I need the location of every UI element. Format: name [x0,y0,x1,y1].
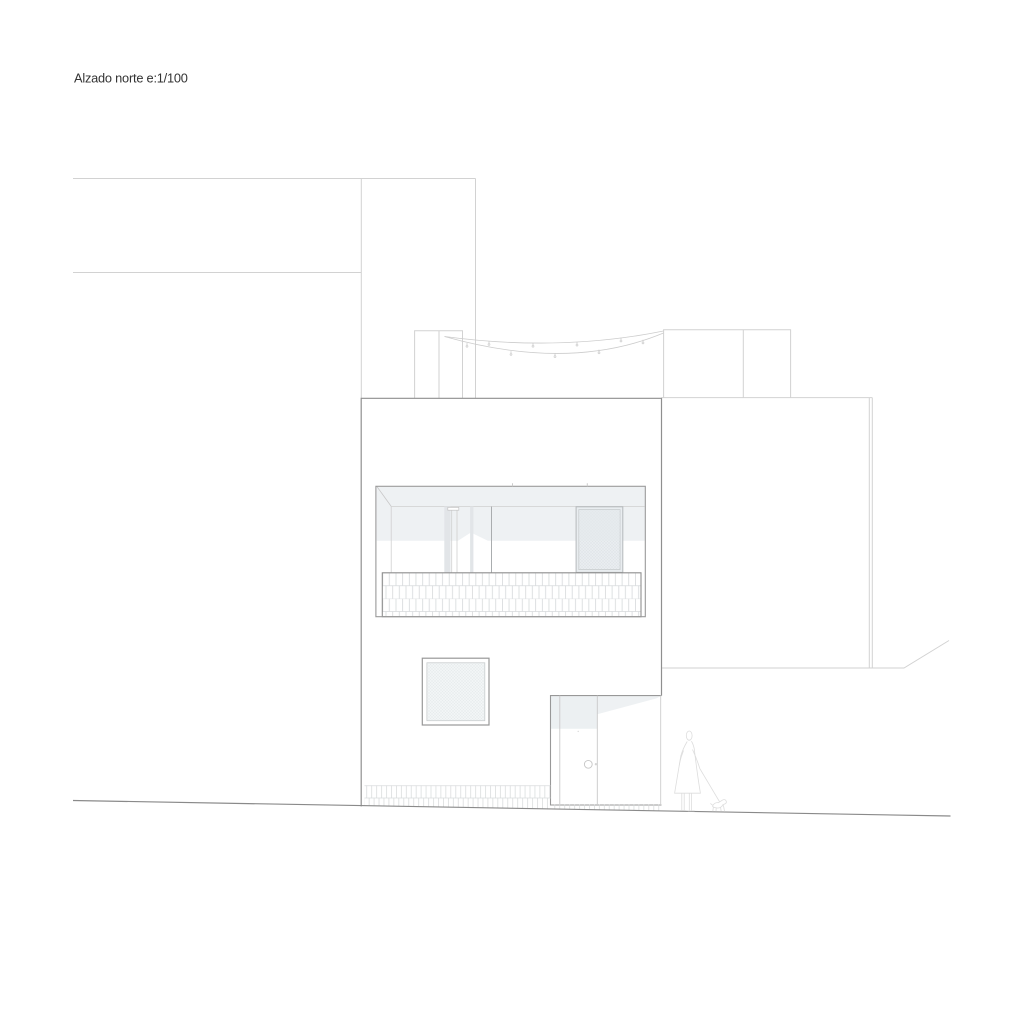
svg-text:Alzado norte e:1/100: Alzado norte e:1/100 [74,71,188,86]
